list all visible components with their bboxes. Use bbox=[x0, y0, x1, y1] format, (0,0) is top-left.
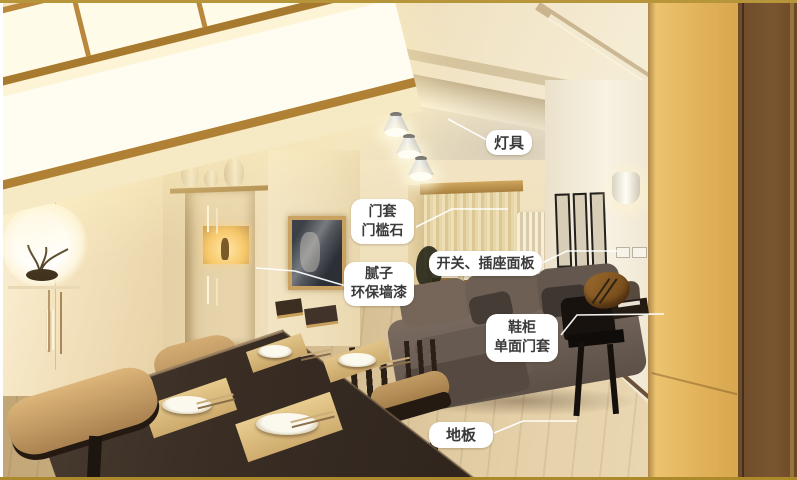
plate bbox=[162, 396, 212, 414]
dark-wood-door-panel bbox=[738, 3, 797, 477]
lantern-mullion bbox=[177, 0, 207, 27]
label-lighting: 灯具 bbox=[486, 130, 532, 155]
frame-border-top bbox=[0, 0, 797, 3]
plate bbox=[258, 345, 292, 358]
door-panel-seam bbox=[742, 3, 744, 477]
switch-socket-panel bbox=[616, 247, 630, 258]
switch-socket-panel bbox=[632, 247, 647, 258]
tv-screen-reflection bbox=[300, 232, 320, 272]
flower-branch bbox=[10, 215, 80, 285]
label-door-casing: 门套 门槛石 bbox=[351, 199, 414, 244]
annotated-room-photo: 灯具 门套 门槛石 开关、插座面板 腻子 环保墙漆 鞋柜 单面门套 地板 bbox=[0, 0, 797, 480]
label-shoe-cabinet: 鞋柜 单面门套 bbox=[486, 314, 558, 362]
spotlight bbox=[406, 156, 436, 184]
art-panel bbox=[572, 193, 589, 271]
wall-sconce bbox=[612, 172, 640, 204]
label-shoe-cabinet-line2: 单面门套 bbox=[494, 338, 550, 357]
label-lighting-text: 灯具 bbox=[494, 135, 524, 151]
door-edge-sliver bbox=[790, 3, 794, 477]
spotlight-glow bbox=[410, 172, 432, 181]
lantern-mullion bbox=[61, 0, 91, 56]
cabinet-handle bbox=[207, 276, 209, 304]
cabinet-corner-shadow bbox=[648, 3, 656, 477]
niche-ornament bbox=[221, 238, 229, 260]
label-door-casing-line1: 门套 bbox=[369, 203, 397, 222]
label-shoe-cabinet-line1: 鞋柜 bbox=[508, 319, 536, 338]
label-switch-panel-text: 开关、插座面板 bbox=[437, 256, 535, 272]
vase bbox=[224, 158, 244, 187]
label-switch-panel: 开关、插座面板 bbox=[429, 251, 542, 276]
label-floor: 地板 bbox=[429, 422, 493, 448]
dining-chair-leg bbox=[87, 436, 102, 480]
cabinet-handle bbox=[207, 206, 209, 232]
label-floor-text: 地板 bbox=[446, 427, 476, 443]
middle-cabinet-recess bbox=[185, 190, 255, 345]
frame-border-left bbox=[0, 3, 3, 477]
plate bbox=[338, 353, 376, 367]
art-panel bbox=[555, 193, 572, 267]
lantern-rail bbox=[0, 0, 392, 99]
label-door-casing-line2: 门槛石 bbox=[362, 222, 404, 241]
label-wall-paint: 腻子 环保墙漆 bbox=[344, 262, 414, 306]
vase bbox=[204, 170, 218, 188]
lamp-stand-leg bbox=[48, 290, 50, 352]
label-wall-paint-line1: 腻子 bbox=[365, 265, 393, 284]
label-wall-paint-line2: 环保墙漆 bbox=[351, 284, 407, 303]
shoe-cabinet-light-panel bbox=[648, 3, 738, 477]
niche-shelf bbox=[8, 286, 80, 289]
